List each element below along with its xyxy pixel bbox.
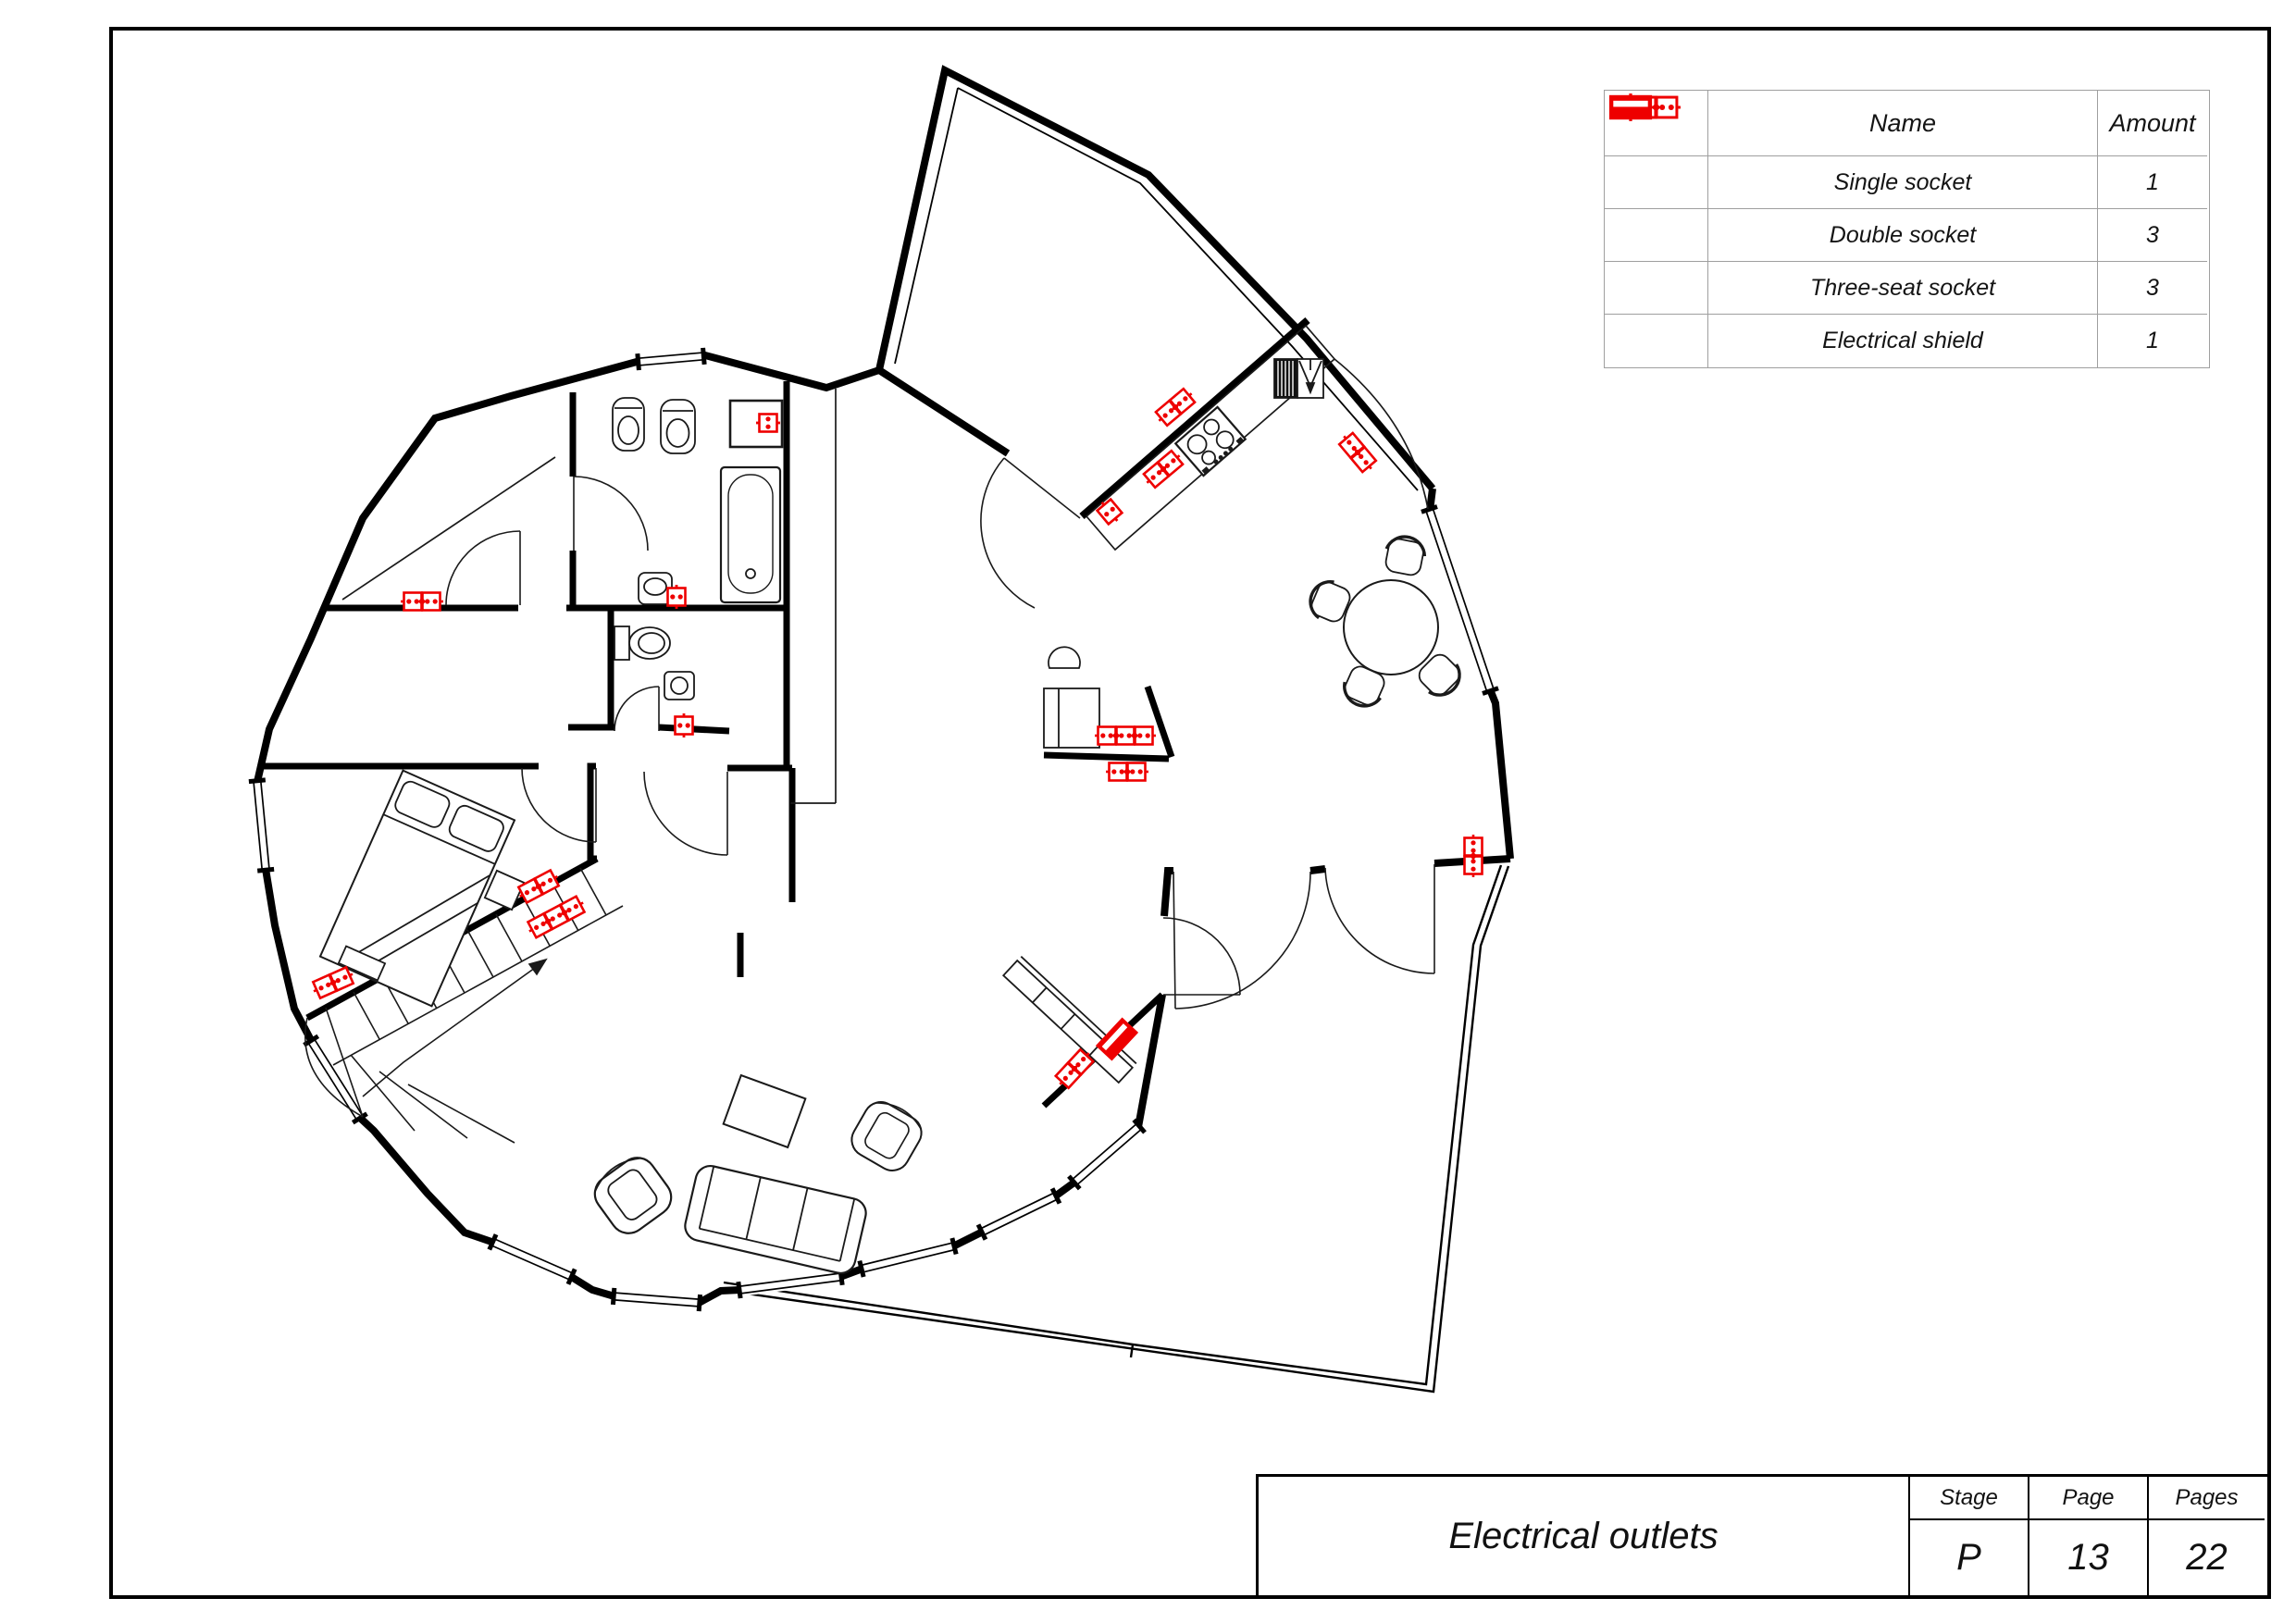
armchair <box>586 1148 678 1240</box>
dining-table <box>1344 580 1438 675</box>
single-socket-icon <box>1605 156 1708 209</box>
drawing-sheet: { "legend": { "headers": { "symbol": "",… <box>0 0 2296 1623</box>
double-socket-symbol <box>1465 835 1483 877</box>
storage-door <box>446 531 520 605</box>
single-socket-symbol <box>676 713 693 737</box>
pages-label: Pages <box>2147 1477 2265 1518</box>
wc-toilet <box>614 626 670 660</box>
legend-row-amount: 1 <box>2098 156 2207 209</box>
bottom-deck <box>721 865 1508 1392</box>
coffee-table <box>724 1075 806 1147</box>
closet-rod <box>342 457 555 600</box>
legend-row-amount: 3 <box>2098 262 2207 315</box>
electrical-shield-icon <box>1605 315 1708 367</box>
single-socket-symbol <box>756 415 780 432</box>
armchair <box>846 1094 929 1176</box>
double-socket-symbol <box>1106 763 1148 781</box>
bedroom-door <box>522 768 596 842</box>
doors <box>446 458 1434 1009</box>
dining-chair <box>1383 533 1428 576</box>
bidet <box>613 398 644 451</box>
legend-row-name: Electrical shield <box>1708 315 2098 367</box>
legend-name-header: Name <box>1708 91 2098 156</box>
stage-label: Stage <box>1908 1477 2028 1518</box>
outlet-symbols <box>310 387 1482 1090</box>
wc-sink <box>664 672 694 700</box>
double-socket-symbol <box>401 593 443 611</box>
legend-row-name: Three-seat socket <box>1708 262 2098 315</box>
legend-row-name: Double socket <box>1708 209 2098 262</box>
legend-amount-header: Amount <box>2098 91 2207 156</box>
legend-row-amount: 1 <box>2098 315 2207 367</box>
page-value: 13 <box>2028 1518 2147 1595</box>
legend-row-name: Single socket <box>1708 156 2098 209</box>
single-socket-symbol <box>668 585 686 609</box>
stove <box>1175 407 1245 476</box>
terrace-door-1 <box>1173 872 1310 1009</box>
terrace-door-2 <box>1325 864 1434 973</box>
bathtub <box>721 467 780 602</box>
stage-value: P <box>1908 1518 2028 1595</box>
double-socket-symbol <box>1053 1047 1095 1091</box>
furniture <box>320 359 1468 1276</box>
wc-door <box>614 687 659 731</box>
desk <box>1044 688 1099 748</box>
bathroom-door <box>574 477 648 551</box>
bed <box>320 771 515 1007</box>
legend-table: Name Amount Single socket 1 Double socke… <box>1604 90 2210 368</box>
drawing-title: Electrical outlets <box>1259 1477 1908 1595</box>
title-block: Electrical outlets Stage Page Pages P 13… <box>1256 1474 2270 1598</box>
toilet <box>661 400 695 453</box>
legend-row-amount: 3 <box>2098 209 2207 262</box>
sofa <box>682 1163 869 1276</box>
double-socket-icon <box>1605 209 1708 262</box>
page-label: Page <box>2028 1477 2147 1518</box>
entrance-door <box>981 458 1080 608</box>
three-seat-socket-symbol <box>1095 727 1156 745</box>
three-seat-socket-icon <box>1605 262 1708 315</box>
desk-chair <box>1049 647 1080 668</box>
hall-door <box>644 772 727 855</box>
pages-value: 22 <box>2147 1518 2265 1595</box>
fridge <box>1274 359 1323 398</box>
